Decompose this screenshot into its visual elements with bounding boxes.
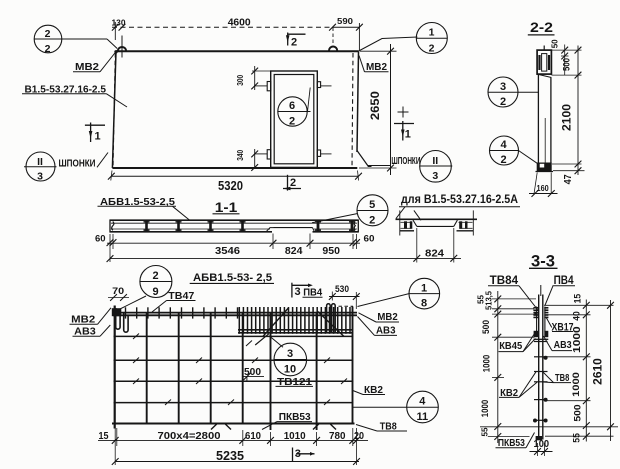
svg-text:513,5: 513,5	[484, 291, 494, 310]
svg-text:4: 4	[500, 139, 507, 151]
svg-text:1000: 1000	[571, 372, 582, 397]
svg-text:40: 40	[572, 311, 582, 321]
svg-text:3: 3	[295, 286, 301, 298]
svg-text:2: 2	[289, 116, 295, 128]
svg-text:1: 1	[95, 130, 101, 142]
svg-text:70: 70	[112, 286, 124, 296]
svg-text:2: 2	[45, 43, 51, 55]
svg-text:1: 1	[405, 129, 411, 141]
svg-text:130: 130	[112, 18, 126, 28]
svg-text:590: 590	[337, 16, 353, 26]
svg-text:ШПОНКИ: ШПОНКИ	[391, 156, 420, 167]
svg-text:60: 60	[364, 234, 375, 245]
svg-text:160: 160	[537, 184, 550, 193]
svg-text:II: II	[37, 156, 43, 168]
svg-text:9: 9	[152, 286, 158, 298]
svg-text:2: 2	[290, 177, 296, 189]
svg-text:2-2: 2-2	[530, 20, 553, 35]
svg-text:300: 300	[236, 74, 245, 85]
svg-text:15: 15	[573, 294, 583, 304]
svg-text:610: 610	[245, 431, 261, 442]
svg-text:60: 60	[95, 233, 106, 244]
svg-text:5: 5	[369, 199, 375, 211]
svg-text:700x4=2800: 700x4=2800	[158, 431, 221, 442]
svg-text:АБВ1.5-53- 2,5: АБВ1.5-53- 2,5	[193, 272, 272, 284]
svg-text:1: 1	[421, 282, 427, 294]
svg-text:3546: 3546	[215, 246, 240, 257]
svg-text:50: 50	[550, 39, 560, 48]
svg-text:ШПОНКИ: ШПОНКИ	[59, 157, 96, 169]
svg-text:4600: 4600	[228, 16, 251, 28]
svg-text:1000: 1000	[480, 400, 490, 418]
svg-text:5320: 5320	[218, 179, 243, 193]
svg-text:3: 3	[500, 81, 506, 93]
svg-text:3: 3	[287, 348, 293, 360]
svg-text:500: 500	[572, 404, 583, 421]
svg-text:1-1: 1-1	[215, 200, 238, 215]
svg-text:КВ45: КВ45	[499, 340, 522, 352]
svg-text:2: 2	[500, 96, 506, 108]
svg-text:3: 3	[295, 448, 301, 460]
svg-text:8: 8	[421, 297, 427, 309]
svg-text:3: 3	[432, 170, 438, 182]
svg-text:1000: 1000	[572, 326, 583, 353]
svg-text:950: 950	[322, 246, 340, 257]
svg-text:АВ3: АВ3	[554, 339, 572, 351]
svg-text:МВ2: МВ2	[75, 61, 99, 73]
svg-text:3: 3	[37, 170, 43, 182]
svg-text:II: II	[432, 155, 438, 167]
svg-text:ТВ84: ТВ84	[490, 275, 519, 287]
svg-text:530: 530	[335, 284, 349, 295]
svg-text:15: 15	[99, 431, 109, 442]
svg-text:МВ2: МВ2	[366, 61, 387, 73]
svg-text:47: 47	[562, 174, 574, 184]
svg-text:2610: 2610	[591, 358, 605, 385]
svg-text:500: 500	[562, 58, 572, 71]
svg-text:824: 824	[285, 246, 303, 257]
svg-text:5235: 5235	[216, 449, 244, 463]
svg-text:1: 1	[429, 27, 435, 39]
svg-text:2: 2	[369, 214, 375, 226]
svg-text:55: 55	[572, 433, 582, 443]
svg-text:2: 2	[429, 43, 435, 55]
svg-text:11: 11	[416, 411, 428, 423]
svg-text:780: 780	[329, 431, 346, 442]
svg-text:2: 2	[45, 28, 51, 40]
svg-text:МВ2: МВ2	[377, 311, 397, 323]
svg-text:1000: 1000	[482, 355, 492, 373]
svg-text:500: 500	[481, 320, 491, 334]
svg-text:100: 100	[534, 438, 550, 450]
svg-text:АВ3: АВ3	[376, 324, 396, 336]
svg-text:824: 824	[425, 248, 444, 260]
svg-text:10: 10	[284, 364, 296, 376]
svg-text:2: 2	[291, 36, 297, 48]
svg-text:2: 2	[500, 154, 506, 166]
svg-text:340: 340	[236, 149, 245, 160]
svg-text:4: 4	[419, 396, 426, 408]
svg-text:20: 20	[354, 431, 364, 442]
svg-text:МВ2: МВ2	[71, 314, 95, 326]
svg-text:для В1.5-53.27.16-2.5А: для В1.5-53.27.16-2.5А	[401, 194, 518, 206]
svg-text:6: 6	[289, 100, 295, 112]
svg-text:3-3: 3-3	[531, 252, 555, 270]
svg-text:2: 2	[152, 270, 158, 282]
svg-text:ПВ4: ПВ4	[303, 286, 322, 298]
svg-text:2100: 2100	[560, 104, 574, 131]
svg-text:2650: 2650	[368, 91, 382, 120]
svg-text:55: 55	[480, 427, 490, 436]
svg-text:1010: 1010	[284, 431, 306, 442]
